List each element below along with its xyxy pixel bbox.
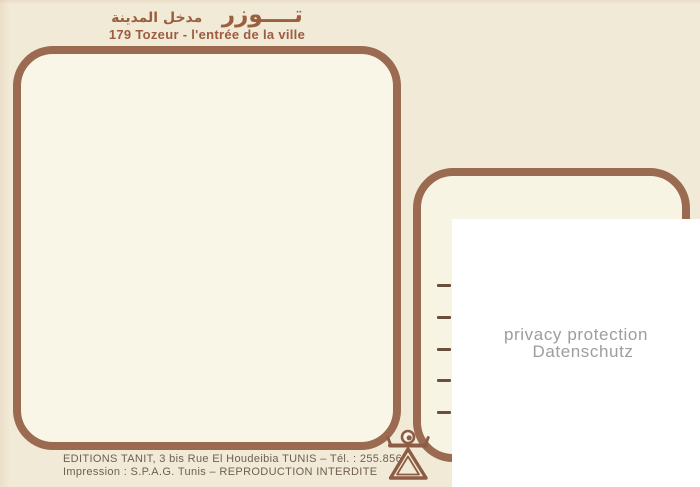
postcard-title: 179 Tozeur - l'entrée de la ville <box>13 27 401 42</box>
privacy-text-en: privacy protection <box>504 327 648 343</box>
tanit-logo-icon <box>386 429 430 481</box>
privacy-overlay: privacy protection Datenschutz <box>452 219 700 487</box>
address-line-dash <box>437 348 451 351</box>
address-line-dash <box>437 284 451 287</box>
address-lines <box>437 284 451 414</box>
arabic-calligraphy: تــــوزر مدخل المدينة <box>13 1 401 30</box>
postcard-header: تــــوزر مدخل المدينة 179 Tozeur - l'ent… <box>13 0 401 42</box>
address-line-dash <box>437 379 451 382</box>
privacy-text-de: Datenschutz <box>532 344 633 360</box>
arabic-subtitle-city-entrance: مدخل المدينة <box>111 10 202 26</box>
address-line-dash <box>437 316 451 319</box>
left-photo-frame <box>13 46 401 450</box>
arabic-title-tozeur: تــــوزر <box>222 2 303 28</box>
address-line-dash <box>437 411 451 414</box>
publisher-line: EDITIONS TANIT, 3 bis Rue El Houdeibia T… <box>63 453 402 466</box>
postcard-back: تــــوزر مدخل المدينة 179 Tozeur - l'ent… <box>0 0 700 487</box>
imprint: EDITIONS TANIT, 3 bis Rue El Houdeibia T… <box>63 453 402 478</box>
printer-line: Impression : S.P.A.G. Tunis – REPRODUCTI… <box>63 466 402 479</box>
